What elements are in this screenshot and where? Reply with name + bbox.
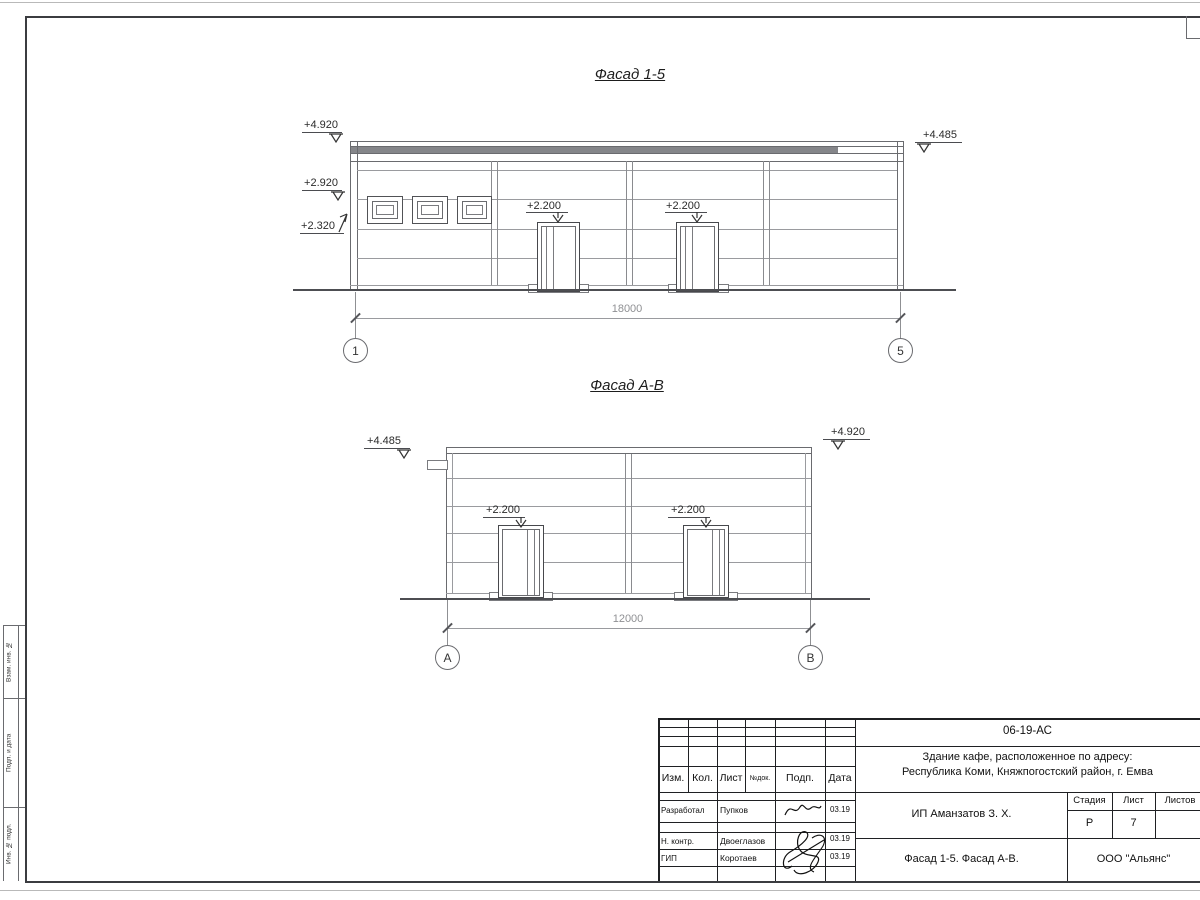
corner-trim bbox=[805, 453, 806, 593]
titleblock-line bbox=[658, 727, 855, 728]
door-leaf-divider bbox=[546, 227, 547, 289]
dimension-line bbox=[447, 628, 810, 629]
window-pane bbox=[376, 205, 394, 215]
facade-1-5-title: Фасад 1-5 bbox=[560, 66, 700, 83]
paper-edge-top bbox=[0, 2, 1200, 3]
door bbox=[537, 222, 580, 292]
bay-joint bbox=[625, 454, 632, 593]
ground-line bbox=[293, 289, 956, 291]
name-developed: Пупков bbox=[720, 805, 748, 815]
project-address-line2: Республика Коми, Княжпогостский район, г… bbox=[860, 766, 1195, 778]
door bbox=[498, 525, 544, 598]
corner-trim bbox=[903, 141, 904, 290]
col-ndok: №док. bbox=[745, 775, 775, 782]
role-ncontr: Н. контр. bbox=[661, 837, 694, 846]
corner-trim bbox=[350, 141, 351, 290]
elevation-arrow-icon bbox=[698, 517, 714, 528]
titleblock-line bbox=[658, 746, 1200, 747]
corner-trim bbox=[897, 141, 898, 290]
company: ООО "Альянс" bbox=[1067, 853, 1200, 865]
drawing-sheet: Взам. инв. № Подп. и дата Инв. № подл. Ф… bbox=[0, 0, 1200, 900]
door-leaf-divider bbox=[692, 227, 693, 289]
wall-edge bbox=[811, 447, 812, 598]
elevation-leader-up-icon bbox=[336, 211, 350, 234]
axis-bubble: 1 bbox=[343, 338, 368, 363]
parapet-line bbox=[350, 141, 903, 142]
parapet-line bbox=[350, 153, 903, 154]
parapet-line bbox=[446, 447, 811, 448]
elevation-marker-icon bbox=[916, 143, 932, 153]
elevation-marker-icon bbox=[830, 440, 846, 450]
door bbox=[683, 525, 729, 598]
date-developed: 03.19 bbox=[825, 805, 855, 814]
corner-trim bbox=[357, 141, 358, 290]
door-leaf-divider bbox=[712, 530, 713, 595]
elevation-arrow-icon bbox=[513, 517, 529, 528]
stamp-vzam-inv: Взам. инв. № bbox=[2, 627, 16, 696]
stage-value: Р bbox=[1067, 817, 1112, 829]
frame-bottom bbox=[25, 881, 1200, 883]
axis-bubble: А bbox=[435, 645, 460, 670]
stamp-strip-line bbox=[3, 698, 25, 699]
titleblock-line bbox=[658, 822, 855, 823]
elevation-text: +2.200 bbox=[482, 504, 524, 516]
window bbox=[412, 196, 448, 224]
titleblock-line bbox=[658, 800, 855, 801]
stamp-inv-podl: Инв. № подл. bbox=[2, 809, 16, 879]
door-leaf-divider bbox=[719, 530, 720, 595]
plinth-line bbox=[350, 285, 903, 286]
col-list: Лист bbox=[717, 772, 745, 784]
sheet-label: Лист bbox=[1112, 795, 1155, 806]
extension-line bbox=[447, 600, 448, 645]
stamp-strip-divider bbox=[18, 625, 19, 881]
corner-box-bottom bbox=[1186, 38, 1200, 39]
elevation-arrow-icon bbox=[689, 212, 705, 223]
col-data: Дата bbox=[825, 772, 855, 784]
axis-label: 5 bbox=[897, 344, 904, 358]
stamp-podp-data: Подп. и дата bbox=[2, 700, 16, 805]
titleblock-line bbox=[658, 736, 855, 737]
elevation-text: +2.200 bbox=[667, 504, 709, 516]
axis-bubble: 5 bbox=[888, 338, 913, 363]
stage-label: Стадия bbox=[1067, 795, 1112, 806]
stamp-strip-line bbox=[3, 625, 25, 626]
door bbox=[676, 222, 719, 292]
door-leaf-divider bbox=[553, 227, 554, 289]
elevation-text: +2.320 bbox=[287, 220, 335, 232]
titleblock-line bbox=[658, 792, 1200, 793]
window-frame bbox=[417, 201, 443, 219]
dimension-line bbox=[355, 318, 900, 319]
frame-left bbox=[25, 16, 27, 883]
titleblock-border bbox=[658, 718, 1200, 720]
door-leaf-divider bbox=[534, 530, 535, 595]
axis-label: В bbox=[806, 651, 814, 665]
name-gip: Коротаев bbox=[720, 853, 757, 863]
elevation-text: +2.920 bbox=[290, 177, 338, 189]
window-frame bbox=[372, 201, 398, 219]
elevation-text: +2.200 bbox=[521, 200, 567, 212]
elevation-text: +4.920 bbox=[826, 426, 870, 438]
corner-box-left bbox=[1186, 16, 1187, 39]
stamp-strip-line bbox=[3, 807, 25, 808]
col-podp: Подп. bbox=[775, 772, 825, 784]
paper-edge-bottom bbox=[0, 890, 1200, 891]
titleblock-line bbox=[855, 838, 1200, 839]
col-kol: Кол. bbox=[688, 772, 717, 784]
titleblock-line bbox=[658, 766, 855, 767]
axis-label: А bbox=[443, 651, 451, 665]
corner-trim bbox=[452, 453, 453, 593]
elevation-arrow-icon bbox=[550, 212, 566, 223]
bay-joint bbox=[491, 161, 498, 285]
frame-top bbox=[25, 16, 1200, 18]
role-gip: ГИП bbox=[661, 854, 677, 863]
elevation-text: +2.200 bbox=[660, 200, 706, 212]
sheet-title: Фасад 1-5. Фасад А-В. bbox=[856, 853, 1067, 865]
axis-bubble: В bbox=[798, 645, 823, 670]
sheet-value: 7 bbox=[1112, 817, 1155, 829]
col-izm: Изм. bbox=[658, 772, 688, 784]
window-pane bbox=[466, 205, 483, 215]
elevation-text: +4.485 bbox=[362, 435, 406, 447]
dimension-value: 18000 bbox=[577, 303, 677, 315]
sheets-label: Листов bbox=[1155, 795, 1200, 806]
elevation-marker-icon bbox=[330, 191, 346, 201]
elevation-text: +4.485 bbox=[918, 129, 962, 141]
role-developed: Разработал bbox=[661, 806, 705, 815]
extension-line bbox=[810, 600, 811, 645]
window-frame bbox=[462, 201, 487, 219]
elevation-marker-icon bbox=[328, 133, 344, 143]
ground-line bbox=[400, 598, 870, 600]
project-address-line1: Здание кафе, расположенное по адресу: bbox=[860, 751, 1195, 763]
dimension-value: 12000 bbox=[578, 613, 678, 625]
signature-developed bbox=[781, 799, 823, 821]
elevation-text: +4.920 bbox=[290, 119, 338, 131]
bay-joint bbox=[763, 161, 770, 285]
client: ИП Аманзатов З. Х. bbox=[856, 808, 1067, 820]
door-leaf-divider bbox=[685, 227, 686, 289]
elevation-marker-icon bbox=[396, 449, 412, 459]
window bbox=[367, 196, 403, 224]
doc-number: 06-19-АС bbox=[855, 725, 1200, 737]
door-leaf-divider bbox=[527, 530, 528, 595]
titleblock-line bbox=[1067, 810, 1200, 811]
window bbox=[457, 196, 492, 224]
name-ncontr: Двоеглазов bbox=[720, 836, 765, 846]
bay-joint bbox=[626, 161, 633, 285]
signature-ncontr-gip bbox=[778, 828, 832, 880]
window-pane bbox=[421, 205, 439, 215]
parapet-return-box bbox=[427, 460, 448, 470]
facade-a-b-title: Фасад А-В bbox=[557, 377, 697, 394]
axis-label: 1 bbox=[352, 344, 359, 358]
